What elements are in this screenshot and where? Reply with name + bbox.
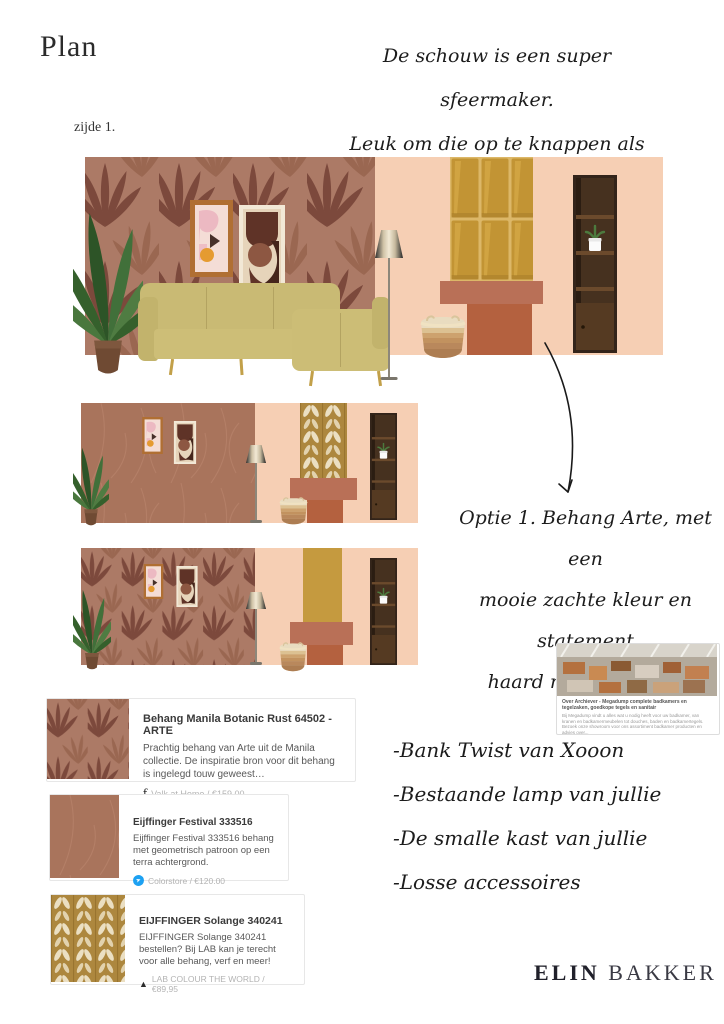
product-image-chevron-wallpaper	[51, 895, 125, 982]
bookshelf	[573, 175, 617, 353]
artwork-frame-pink	[140, 417, 165, 454]
moodboard-large	[85, 157, 663, 355]
colorstore-bird-logo-icon: ➤	[131, 873, 145, 887]
potted-plant	[73, 581, 111, 671]
artwork-frame-pink	[190, 200, 233, 277]
list-item-sofa: -Bank Twist van Xooon	[393, 738, 661, 762]
fireplace-tiles	[450, 157, 533, 281]
floor-lamp	[246, 445, 266, 523]
option-note-line-1: Optie 1. Behang Arte, met een	[447, 498, 724, 580]
product-description: EIJFFINGER Solange 340241 bestellen? Bij…	[139, 932, 292, 968]
storage-basket	[278, 642, 308, 672]
product-image-botanic-wallpaper	[47, 699, 129, 779]
bookshelf	[370, 413, 397, 520]
potted-plant	[73, 439, 109, 527]
floor-lamp	[246, 592, 266, 665]
product-source: LAB COLOUR THE WORLD / €89,95	[152, 974, 292, 994]
plan-page: { "header": { "title": "Plan", "side_lab…	[0, 0, 724, 1024]
brand-first-name: ELIN	[534, 960, 600, 985]
product-title: Behang Manila Botanic Rust 64502 - ARTE	[143, 713, 343, 737]
fireplace-firebox	[307, 500, 343, 523]
sofa	[140, 283, 390, 387]
fireplace-mantel	[440, 281, 543, 304]
storage-basket	[418, 315, 468, 359]
link-preview-card[interactable]: Over Archiever - Megadump complete badka…	[556, 643, 720, 735]
arrow-annotation	[520, 330, 590, 505]
product-card-eijffinger-solange[interactable]: EIJFFINGER Solange 340241 EIJFFINGER Sol…	[50, 894, 305, 985]
page-title: Plan	[40, 30, 97, 64]
moodboard-option-b	[81, 548, 418, 665]
list-item-lamp: -Bestaande lamp van jullie	[393, 782, 661, 806]
artwork-frame-brown	[239, 205, 285, 294]
list-item-cabinet: -De smalle kast van jullie	[393, 826, 661, 850]
brand-logo: ELIN BAKKER	[534, 960, 717, 986]
product-title: Eijffinger Festival 333516	[133, 817, 276, 828]
moodboard-option-a	[81, 403, 418, 523]
potted-plant	[73, 195, 143, 377]
brand-last-name: BAKKER	[608, 960, 716, 985]
furniture-list: -Bank Twist van Xooon -Bestaande lamp va…	[393, 738, 661, 914]
floor-lamp	[375, 230, 403, 380]
product-source: Colorstore / €120.00	[148, 876, 225, 886]
artwork-frame-pink	[140, 564, 167, 599]
lab-triangle-logo-icon: ▲	[139, 979, 148, 989]
top-note-line-1: De schouw is een super sfeermaker.	[330, 34, 664, 122]
product-image-terra-wallpaper	[50, 795, 119, 878]
fireplace-chevron-wallpaper	[300, 403, 347, 478]
product-description: Prachtig behang van Arte uit de Manila c…	[143, 742, 343, 781]
product-description: Eijffinger Festival 333516 behang met ge…	[133, 833, 276, 869]
fireplace-firebox	[307, 645, 343, 665]
list-item-accessories: -Losse accessoires	[393, 870, 661, 894]
artwork-frame-brown	[172, 566, 202, 607]
link-preview-image	[557, 644, 717, 696]
link-preview-description: Bij Megadump vindt u alles wat u nodig h…	[562, 713, 714, 735]
fireplace-gold-column	[303, 548, 342, 622]
link-preview-title: Over Archiever - Megadump complete badka…	[562, 699, 714, 711]
artwork-frame-brown	[171, 421, 199, 464]
side-label: zijde 1.	[74, 120, 115, 136]
product-card-eijffinger-festival[interactable]: Eijffinger Festival 333516 Eijffinger Fe…	[49, 794, 289, 881]
bookshelf	[370, 558, 397, 665]
product-card-arte-manila[interactable]: Behang Manila Botanic Rust 64502 - ARTE …	[46, 698, 356, 782]
product-title: EIJFFINGER Solange 340241	[139, 915, 292, 927]
storage-basket	[278, 497, 309, 525]
